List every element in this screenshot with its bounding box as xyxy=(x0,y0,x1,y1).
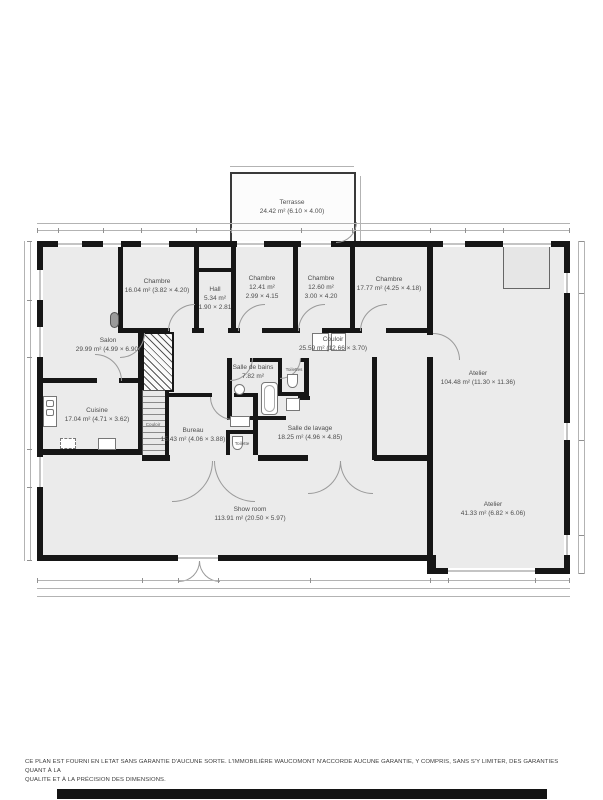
wall xyxy=(231,246,236,333)
wall xyxy=(142,455,170,461)
toilet-icon xyxy=(287,374,298,388)
dimension-line xyxy=(230,166,354,167)
dimension-tick xyxy=(37,578,38,583)
window xyxy=(301,241,331,247)
dimension-tick xyxy=(231,228,232,233)
washbasin-icon xyxy=(234,384,245,395)
dimension-tick xyxy=(579,535,584,536)
dimension-tick xyxy=(569,578,570,583)
room-name: Toilette xyxy=(235,441,250,447)
room-name: Chambre xyxy=(246,275,279,284)
floor-plan-page: Terrasse 24.42 m² (6.10 × 4.00) Chambre … xyxy=(0,0,603,800)
dimension-line xyxy=(578,241,579,574)
shaft-hatched-area xyxy=(142,332,174,392)
window xyxy=(564,535,570,555)
dimension-tick xyxy=(37,228,38,233)
dimension-tick xyxy=(178,578,179,583)
wall xyxy=(253,393,258,455)
wall xyxy=(386,328,427,333)
wall xyxy=(372,357,377,460)
sink-icon xyxy=(286,398,300,411)
dimension-tick xyxy=(27,449,32,450)
room-name: Salle de lavage xyxy=(278,425,343,434)
wall xyxy=(226,430,254,434)
wall xyxy=(427,357,433,561)
room-dims: 17.04 m² (4.71 × 3.62) xyxy=(65,416,130,425)
sink-icon xyxy=(230,416,250,427)
kitchen-sink-icon xyxy=(46,400,54,407)
atelier-subroom-outline xyxy=(503,246,550,289)
window xyxy=(448,568,535,574)
wall xyxy=(293,246,298,333)
room-dims: 24.42 m² (6.10 × 4.00) xyxy=(260,208,325,217)
room-label-hall: Hall 5.34 m² 1.90 × 2.81 xyxy=(199,286,232,312)
room-dims: 15.43 m² (4.06 × 3.88) xyxy=(161,436,226,445)
window xyxy=(141,241,169,247)
room-dims: 16.04 m² (3.82 × 4.20) xyxy=(125,287,190,296)
room-label-salle-de-bains: Salle de bains 7.82 m² xyxy=(233,364,274,382)
room-dims: 12.60 m² xyxy=(305,284,338,293)
room-dims: 104.48 m² (11.30 × 11.36) xyxy=(441,379,515,388)
room-label-show-room: Show room 113.91 m² (20.50 × 5.97) xyxy=(214,506,285,524)
disclaimer-line-2: QUALITE ET À LA PRÉCISION DES DIMENSIONS… xyxy=(25,776,573,785)
room-label-chambre-1: Chambre 16.04 m² (3.82 × 4.20) xyxy=(125,278,190,296)
dimension-tick xyxy=(430,228,431,233)
dimension-tick xyxy=(535,578,536,583)
room-label-chambre-4: Chambre 17.77 m² (4.25 × 4.18) xyxy=(357,276,422,294)
room-label-atelier-2: Atelier 41.33 m² (6.82 × 6.06) xyxy=(461,501,526,519)
room-name: Couloir xyxy=(146,422,161,428)
wall xyxy=(258,455,308,461)
dimension-tick xyxy=(27,560,32,561)
window xyxy=(564,423,570,440)
dimension-tick xyxy=(569,228,570,233)
dimension-tick xyxy=(218,578,219,583)
room-dims: 17.77 m² (4.25 × 4.18) xyxy=(357,285,422,294)
room-label-chambre-3: Chambre 12.60 m² 3.00 × 4.20 xyxy=(305,275,338,301)
kitchen-sink-icon xyxy=(46,409,54,416)
window xyxy=(103,241,121,247)
room-name: Chambre xyxy=(305,275,338,284)
wall xyxy=(119,378,142,383)
room-label-salon: Salon 29.99 m² (4.99 × 6.90) xyxy=(76,337,141,355)
disclaimer-text: CE PLAN EST FOURNI EN LETAT SANS GARANTI… xyxy=(25,758,573,785)
room-dims: 3.00 × 4.20 xyxy=(305,292,338,301)
room-dims: 18.25 m² (4.96 × 4.85) xyxy=(278,434,343,443)
bathtub-inner xyxy=(264,385,275,412)
appliance-icon xyxy=(98,438,116,450)
dimension-tick xyxy=(301,228,302,233)
dimension-line xyxy=(30,241,31,561)
window xyxy=(564,273,570,293)
room-dims: 29.99 m² (4.99 × 6.90) xyxy=(76,346,141,355)
room-dims: 1.90 × 2.81 xyxy=(199,303,232,312)
room-label-couloir: Couloir 25.59 m² (12.66 × 3.70) xyxy=(299,336,367,354)
dimension-tick xyxy=(579,440,584,441)
dimension-tick xyxy=(579,241,584,242)
room-name: Cuisine xyxy=(65,407,130,416)
dimension-tick xyxy=(430,578,431,583)
room-label-toilettes: Toilettes xyxy=(286,367,303,373)
window xyxy=(237,241,264,247)
dimension-line xyxy=(24,241,25,561)
dimension-line xyxy=(37,596,570,597)
room-name: Couloir xyxy=(299,336,367,345)
wall xyxy=(43,378,97,383)
wall xyxy=(250,358,280,362)
stove-icon xyxy=(110,312,119,328)
disclaimer-line-1: CE PLAN EST FOURNI EN LETAT SANS GARANTI… xyxy=(25,758,573,776)
room-label-cuisine: Cuisine 17.04 m² (4.71 × 3.62) xyxy=(65,407,130,425)
window xyxy=(37,270,43,300)
room-label-couloir-escalier: Couloir xyxy=(146,422,161,428)
dimension-tick xyxy=(27,241,32,242)
dimension-tick xyxy=(196,228,197,233)
room-name: Bureau xyxy=(161,427,226,436)
window xyxy=(37,457,43,487)
window xyxy=(58,241,82,247)
room-name: Terrasse xyxy=(260,199,325,208)
window xyxy=(503,241,551,247)
room-label-toilette: Toilette xyxy=(235,441,250,447)
dimension-tick xyxy=(465,228,466,233)
room-label-chambre-2: Chambre 12.41 m² 2.99 × 4.15 xyxy=(246,275,279,301)
dimension-tick xyxy=(27,357,32,358)
window xyxy=(37,327,43,357)
dimension-tick xyxy=(448,578,449,583)
dimension-tick xyxy=(503,228,504,233)
dimension-tick xyxy=(27,487,32,488)
dimension-tick xyxy=(27,300,32,301)
room-dims: 7.82 m² xyxy=(233,373,274,382)
room-dims: 113.91 m² (20.50 × 5.97) xyxy=(214,515,285,524)
room-name: Atelier xyxy=(441,370,515,379)
dimension-line xyxy=(360,176,361,241)
room-label-atelier-1: Atelier 104.48 m² (11.30 × 11.36) xyxy=(441,370,515,388)
room-name: Atelier xyxy=(461,501,526,510)
room-dims: 5.34 m² xyxy=(199,295,232,304)
wall xyxy=(374,455,427,461)
room-name: Chambre xyxy=(125,278,190,287)
dimension-tick xyxy=(310,578,311,583)
dimension-tick xyxy=(58,228,59,233)
wall xyxy=(350,246,355,333)
dimension-line xyxy=(37,588,570,589)
footer-bar xyxy=(57,789,547,799)
room-name: Chambre xyxy=(357,276,422,285)
room-dims: 2.99 × 4.15 xyxy=(246,292,279,301)
wall xyxy=(37,555,436,561)
dimension-tick xyxy=(579,293,584,294)
room-name: Salon xyxy=(76,337,141,346)
dimension-tick xyxy=(141,228,142,233)
room-name: Hall xyxy=(199,286,232,295)
wall xyxy=(427,246,433,335)
room-name: Show room xyxy=(214,506,285,515)
room-label-bureau: Bureau 15.43 m² (4.06 × 3.88) xyxy=(161,427,226,445)
dimension-tick xyxy=(142,578,143,583)
wall xyxy=(169,393,212,397)
wall xyxy=(226,430,230,455)
room-dims: 12.41 m² xyxy=(246,284,279,293)
dimension-line xyxy=(37,223,570,224)
dimension-line xyxy=(37,230,570,231)
window xyxy=(443,241,465,247)
appliance-icon xyxy=(60,438,76,449)
dimension-tick xyxy=(103,228,104,233)
door-arc xyxy=(179,561,200,582)
room-label-terrasse: Terrasse 24.42 m² (6.10 × 4.00) xyxy=(260,199,325,217)
room-dims: 41.33 m² (6.82 × 6.06) xyxy=(461,510,526,519)
wall xyxy=(165,390,169,455)
door-arc xyxy=(199,561,220,582)
wall xyxy=(196,268,236,272)
dimension-line xyxy=(37,580,570,581)
wall xyxy=(37,449,142,455)
room-name: Toilettes xyxy=(286,367,303,373)
wall xyxy=(262,328,300,333)
room-name: Salle de bains xyxy=(233,364,274,373)
dimension-line xyxy=(584,241,585,574)
dimension-tick xyxy=(579,573,584,574)
dimension-tick xyxy=(352,228,353,233)
room-dims: 25.59 m² (12.66 × 3.70) xyxy=(299,345,367,354)
room-label-salle-de-lavage: Salle de lavage 18.25 m² (4.96 × 4.85) xyxy=(278,425,343,443)
